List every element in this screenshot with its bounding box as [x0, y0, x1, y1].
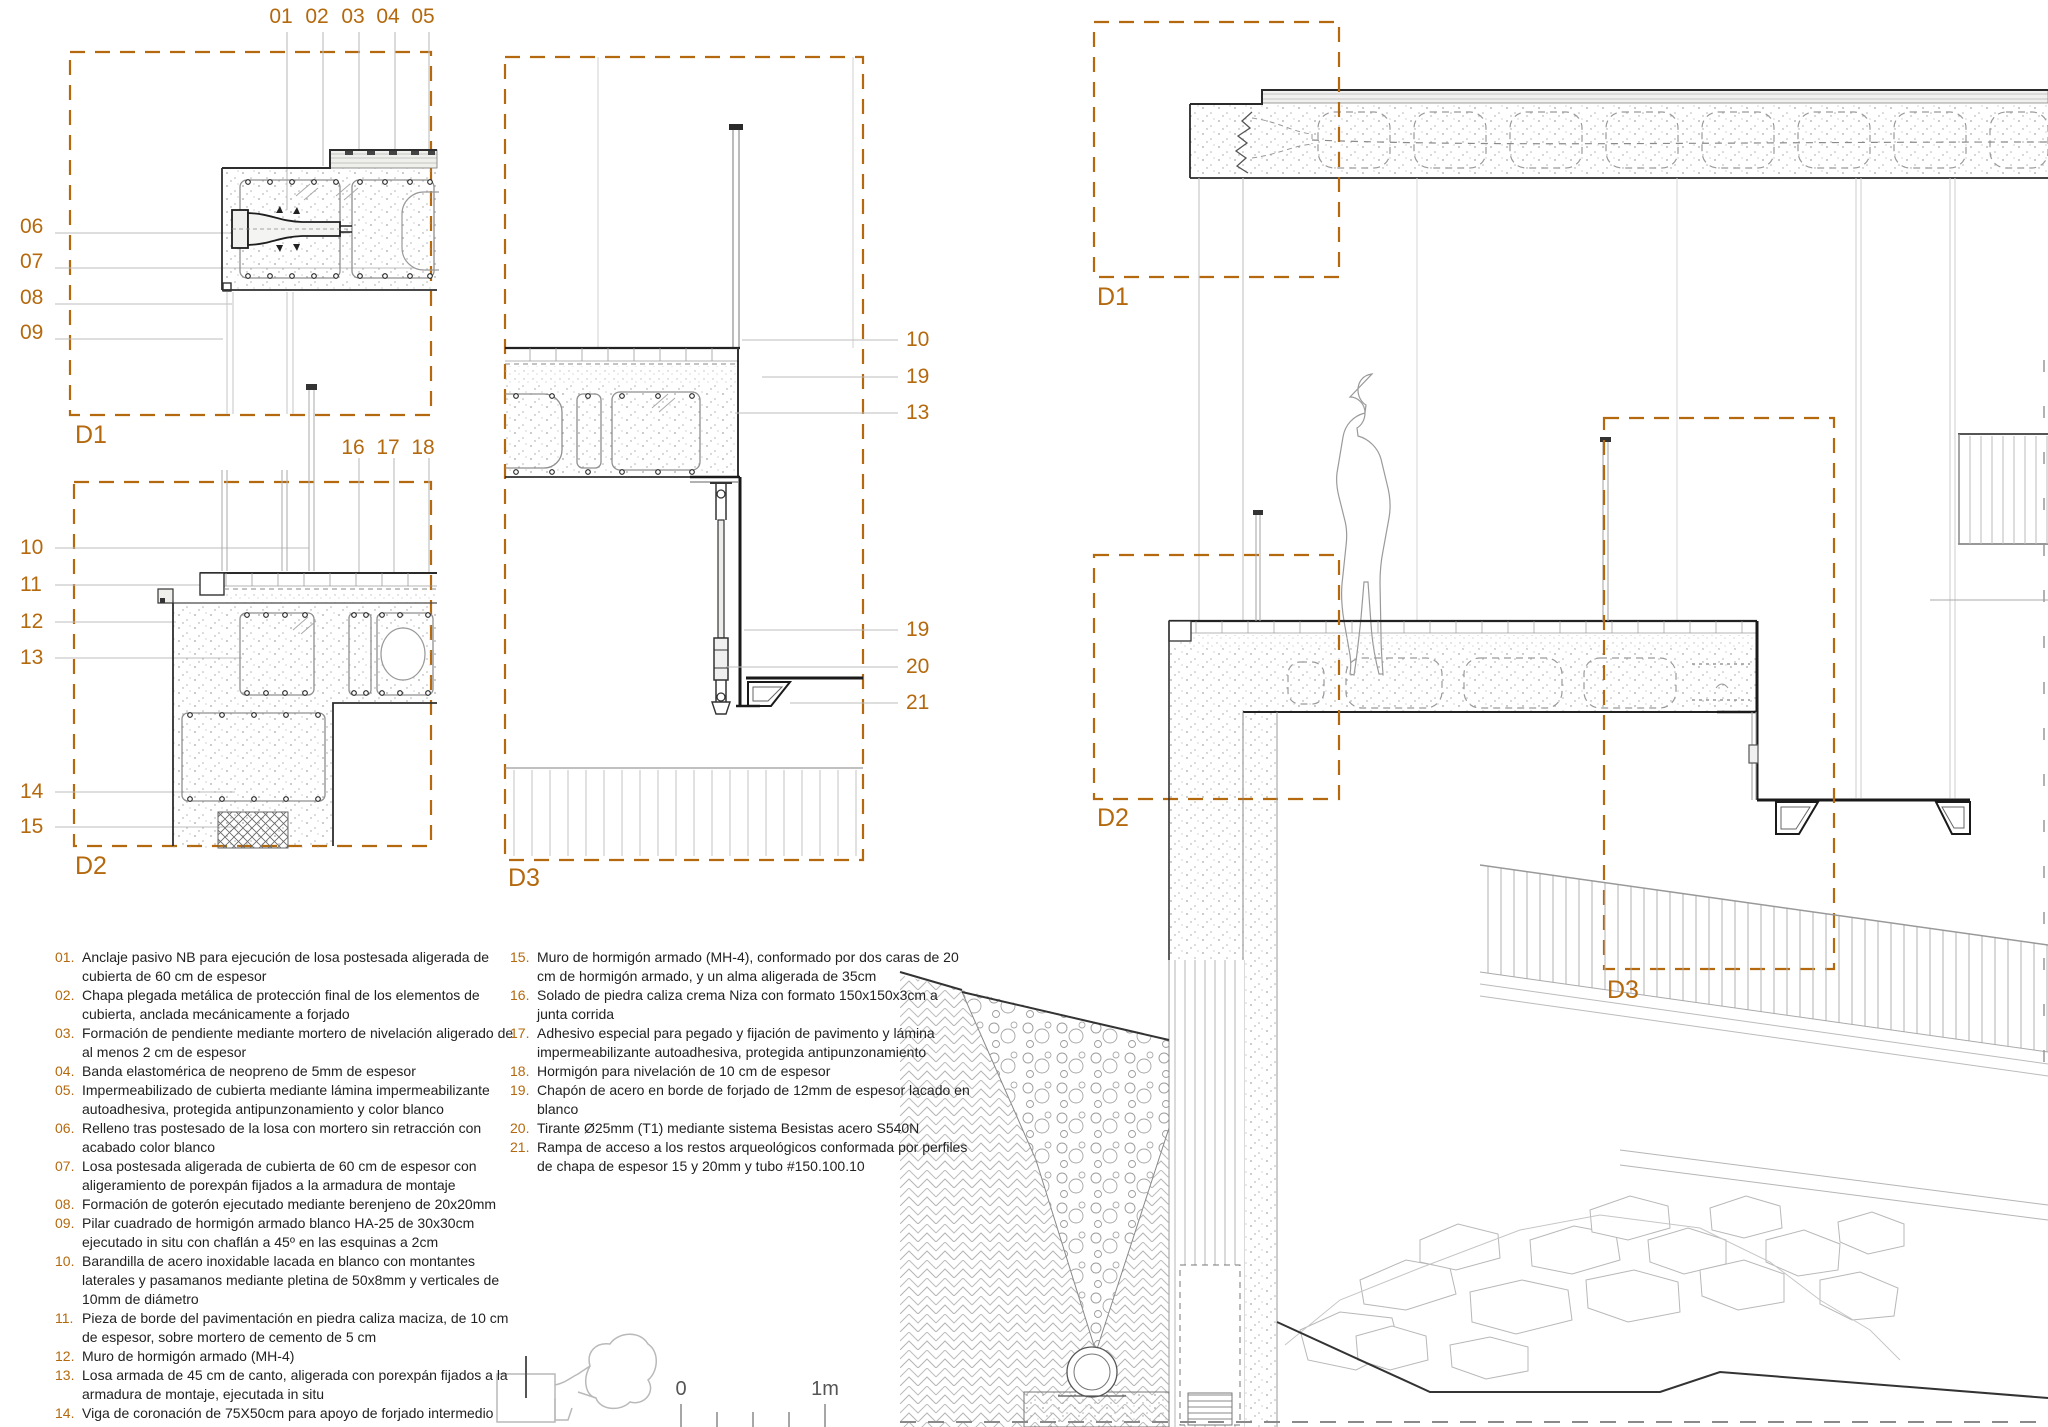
d2-pavement	[200, 573, 437, 603]
callout-19a: 19	[906, 364, 929, 390]
legend-item: 04.Banda elastomérica de neopreno de 5mm…	[55, 1062, 515, 1081]
callout-21: 21	[906, 690, 929, 716]
anchor-pictogram	[497, 1334, 656, 1422]
d2-railing-posts	[222, 390, 314, 571]
legend-item: 02.Chapa plegada metálica de protección …	[55, 986, 515, 1024]
wall-below-floor	[1169, 621, 1277, 1427]
callout-12: 12	[20, 609, 43, 635]
legend-item: 01.Anclaje pasivo NB para ejecución de l…	[55, 948, 515, 986]
d1-slab-art	[222, 150, 472, 414]
tie-rod	[710, 483, 732, 714]
roof-slab	[1190, 90, 2048, 178]
legend-item: 20.Tirante Ø25mm (T1) mediante sistema B…	[510, 1119, 970, 1138]
human-figure	[1337, 374, 1390, 675]
ramp-channel	[748, 682, 790, 706]
legend-item: 13.Losa armada de 45 cm de canto, aliger…	[55, 1366, 515, 1404]
legend-item: 15.Muro de hormigón armado (MH-4), confo…	[510, 948, 970, 986]
d3-leader-lines	[726, 340, 898, 703]
legend-item: 10.Barandilla de acero inoxidable lacada…	[55, 1252, 515, 1309]
section-d2-label: D2	[1097, 804, 1129, 832]
archaeological-stones	[1285, 1196, 1904, 1379]
legend-item: 05.Impermeabilizado de cubierta mediante…	[55, 1081, 515, 1119]
callout-04: 04	[376, 4, 399, 30]
section-d1-label: D1	[1097, 283, 1129, 311]
d2-title: D2	[75, 852, 107, 880]
legend-column-2: 15.Muro de hormigón armado (MH-4), confo…	[510, 948, 970, 1176]
callout-05: 05	[411, 4, 434, 30]
legend-item: 21.Rampa de acceso a los restos arqueoló…	[510, 1138, 970, 1176]
legend-item: 18.Hormigón para nivelación de 10 cm de …	[510, 1062, 970, 1081]
callout-07: 07	[20, 249, 43, 275]
d3-railing-post	[733, 130, 739, 348]
d3-detail-drawing	[488, 57, 898, 860]
callout-20: 20	[906, 654, 929, 680]
callout-02: 02	[305, 4, 328, 30]
legend-item: 11.Pieza de borde del pavimentación en p…	[55, 1309, 515, 1347]
scale-zero-label: 0	[675, 1378, 686, 1400]
building-section	[900, 22, 2048, 1427]
d1-detail-drawing	[55, 32, 472, 415]
legend-column-1: 01.Anclaje pasivo NB para ejecución de l…	[55, 948, 515, 1423]
legend-item: 07.Losa postesada aligerada de cubierta …	[55, 1157, 515, 1195]
callout-10: 10	[20, 535, 43, 561]
legend-item: 17.Adhesivo especial para pegado y fijac…	[510, 1024, 970, 1062]
legend-item: 08.Formación de goterón ejecutado median…	[55, 1195, 515, 1214]
callout-11: 11	[20, 572, 42, 598]
hanger-rods	[1856, 178, 1955, 798]
callout-06: 06	[20, 214, 43, 240]
scale-one-meter-label: 1m	[811, 1378, 839, 1400]
scale-bar-ticks	[681, 1404, 825, 1427]
d3-title: D3	[508, 864, 540, 892]
section-d3-label: D3	[1607, 976, 1639, 1004]
intermediate-floor	[1169, 621, 1757, 712]
callout-13b: 13	[906, 400, 929, 426]
callout-10b: 10	[906, 327, 929, 353]
callout-19b: 19	[906, 617, 929, 643]
legend-item: 19.Chapón de acero en borde de forjado d…	[510, 1081, 970, 1119]
architectural-detail-sheet: 01 02 03 04 05 06 07 08 09 D1 16 17 18 1…	[0, 0, 2048, 1427]
insulation-hatch-block	[218, 812, 288, 848]
upper-right-railing	[1930, 434, 2048, 600]
callout-13: 13	[20, 645, 43, 671]
legend-item: 16.Solado de piedra caliza crema Niza co…	[510, 986, 970, 1024]
lower-ramp-railing	[1480, 865, 2048, 1220]
d1-title: D1	[75, 421, 107, 449]
callout-08: 08	[20, 285, 43, 311]
callout-09: 09	[20, 320, 43, 346]
callout-03: 03	[341, 4, 364, 30]
legend-item: 14.Viga de coronación de 75X50cm para ap…	[55, 1404, 515, 1423]
callout-17: 17	[376, 435, 399, 461]
callout-01: 01	[269, 4, 292, 30]
callout-15: 15	[20, 814, 43, 840]
callout-18: 18	[411, 435, 434, 461]
callout-16: 16	[341, 435, 364, 461]
legend-item: 03.Formación de pendiente mediante morte…	[55, 1024, 515, 1062]
legend-item: 09.Pilar cuadrado de hormigón armado bla…	[55, 1214, 515, 1252]
d3-post-cap	[729, 124, 743, 130]
legend-item: 12.Muro de hormigón armado (MH-4)	[55, 1347, 515, 1366]
d2-concrete	[158, 589, 437, 848]
callout-14: 14	[20, 779, 43, 805]
floor-railing-posts	[1253, 437, 1611, 621]
legend-item: 06.Relleno tras postesado de la losa con…	[55, 1119, 515, 1157]
d2-post-cap	[306, 384, 317, 390]
